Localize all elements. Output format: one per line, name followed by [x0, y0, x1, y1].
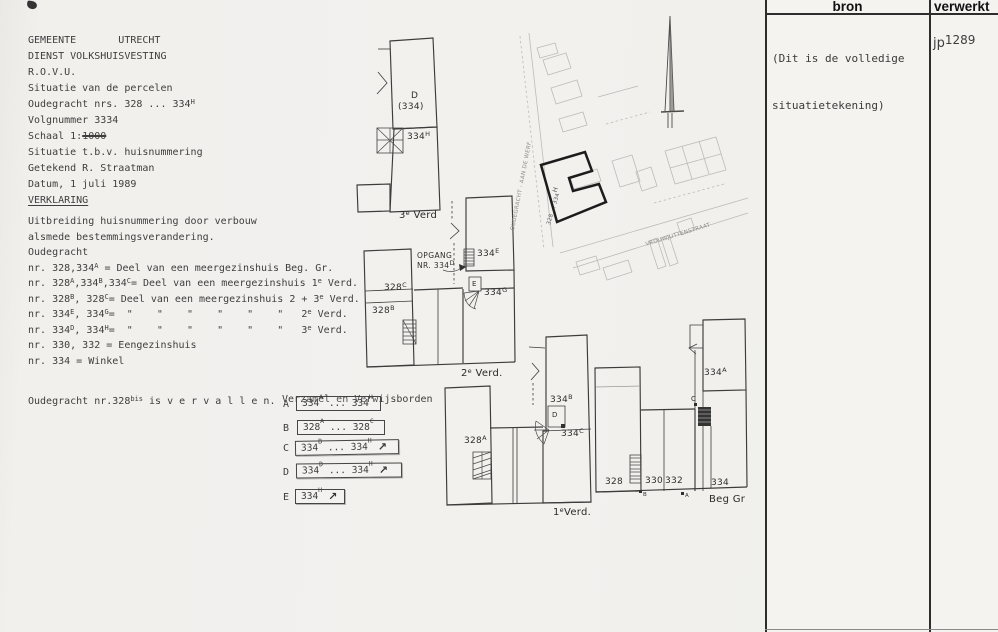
ref-mark-b [639, 490, 642, 493]
verklaring-line: alsmede bestemmingsverandering. [28, 230, 360, 246]
verklaring-line: nr. 334D, 334H= " " " " " " 3e Verd. [28, 323, 360, 339]
unit-label-328b: 328B [372, 306, 395, 316]
bron-note-line1: (Dit is de volledige [772, 51, 904, 67]
break-chevron-icon [450, 223, 459, 239]
unit-label-328c: 328C [384, 283, 407, 293]
unit-label-334g: 334G [484, 288, 507, 298]
legend-sign-text: 334B ... 334H [301, 442, 372, 454]
north-arrow-icon [661, 16, 684, 128]
stair-fan-icon [534, 421, 549, 444]
unit-label-334-paren: (334) [398, 102, 424, 112]
verklaring-block: Uitbreiding huisnummering door verbouw a… [28, 214, 360, 369]
legend-sign-text: 328A ... 328C [303, 422, 374, 433]
unit-label-334b: 334B [550, 395, 573, 405]
scanned-situatietekening: { "title_block": { "l1": "GEMEENTE UTREC… [0, 0, 998, 632]
table-border-left [765, 0, 767, 632]
plan-3e-verd [357, 38, 440, 212]
unit-label-334c: 334C [561, 429, 584, 439]
entrance-label-d: D [552, 411, 558, 419]
legend-sign-d: 334D ... 334H ↗ [296, 462, 402, 478]
legend-sign-text: 334H [301, 491, 322, 502]
table-column-divider [929, 0, 931, 632]
unit-label-330: 330 [645, 476, 663, 486]
title-block: GEMEENTE UTRECHT DIENST VOLKSHUISVESTING… [28, 33, 203, 209]
bron-note-line2: situatietekening) [772, 98, 904, 114]
unit-label-334h: 334H [407, 132, 430, 142]
entrance-label-e: E [472, 280, 477, 288]
wall-outline [357, 184, 390, 212]
verklaring-line: nr. 328A,334B,334C= Deel van een meergez… [28, 276, 360, 292]
verklaring-line: Oudegracht [28, 245, 360, 261]
department-name: DIENST VOLKSHUISVESTING [28, 49, 203, 65]
ref-mark-label-a: A [685, 493, 689, 499]
legend-sign-b: 328A ... 328C [297, 420, 385, 435]
opgang-note-line2: NR. 334D [417, 261, 455, 270]
column-header-verwerkt: verwerkt [934, 0, 990, 14]
break-chevron-icon [377, 72, 387, 94]
entrance-label-c: C [691, 395, 696, 403]
plan-2e-verd [364, 196, 515, 367]
unit-label-328a: 328A [464, 436, 487, 446]
datum-line: Datum, 1 juli 1989 [28, 177, 203, 193]
verklaring-line: nr. 334 = Winkel [28, 354, 360, 370]
bron-note: (Dit is de volledige situatietekening) [772, 20, 904, 144]
huisnummering-line: Situatie t.b.v. huisnummering [28, 145, 203, 161]
volgnummer-line: Volgnummer 3334 [28, 113, 203, 129]
stair-icon [473, 452, 491, 479]
stair-icon [403, 320, 416, 344]
floor-label-1e-verd: 1eVerd. [553, 507, 591, 518]
legend-sign-e: 334H ↗ [295, 489, 345, 504]
legend-sign-a: 334A ... 334H [296, 396, 381, 411]
opgang-note-line1: OPGANG [417, 251, 452, 260]
unit-label-328: 328 [605, 477, 623, 487]
stair-icon [630, 455, 641, 483]
unit-label-334e: 334E [477, 249, 500, 259]
stair-fan-icon [464, 291, 479, 309]
floor-label-beg-gr: Beg Gr [709, 494, 745, 505]
unit-label-334a: 334A [704, 368, 727, 378]
column-header-bron: bron [766, 0, 929, 14]
verklaring-line: nr. 328B, 328C= Deel van een meergezinsh… [28, 292, 360, 308]
legend-key: C [283, 443, 289, 454]
ref-mark-label-b: B [643, 492, 647, 498]
unit-label-334: 334 [711, 478, 729, 488]
wall-outline [595, 367, 641, 492]
verklaring-line: nr. 330, 332 = Eengezinshuis [28, 338, 360, 354]
wall-outline [703, 319, 746, 391]
verklaring-line: nr. 328,334A = Deel van een meergezinshu… [28, 261, 360, 277]
legend-key: A [283, 399, 289, 410]
legend-sign-c: 334B ... 334H ↗ [295, 439, 399, 456]
schaal-line: Schaal 1:1000 [28, 129, 203, 145]
verklaring-heading: VERKLARING [28, 193, 203, 209]
wall-outline [390, 38, 437, 129]
verwerkt-value: jp1289 [933, 36, 975, 51]
unit-label-d: D [411, 91, 418, 101]
legend-sign-text: 334D ... 334H [302, 465, 373, 477]
address-range-line: Oudegracht nrs. 328 ... 334H [28, 97, 203, 113]
plan-1e-verd [445, 335, 591, 505]
site-map [520, 33, 748, 280]
situatie-line: Situatie van de percelen [28, 81, 203, 97]
unit-label-332: 332 [665, 476, 683, 486]
stair-icon [377, 128, 403, 153]
getekend-line: Getekend R. Straatman [28, 161, 203, 177]
verklaring-line: Uitbreiding huisnummering door verbouw [28, 214, 360, 230]
wall-outline [466, 196, 514, 271]
floor-label-3e-verd: 3e Verd [399, 210, 437, 221]
break-chevron-icon [531, 363, 539, 380]
verklaring-line: nr. 334E, 334G= " " " " " " 2e Verd. [28, 307, 360, 323]
legend-key: E [283, 492, 289, 503]
legend-key: B [283, 423, 289, 434]
wall-outline [543, 335, 591, 503]
floor-label-2e-verd: 2e Verd. [461, 368, 503, 379]
table-border-bottom [765, 629, 998, 630]
legend-sign-text: 334A ... 334H [302, 398, 373, 409]
agency-name: GEMEENTE UTRECHT [28, 33, 203, 49]
legend-key: D [283, 467, 289, 478]
rovu-line: R.O.V.U. [28, 65, 203, 81]
ref-mark-a [681, 492, 684, 495]
